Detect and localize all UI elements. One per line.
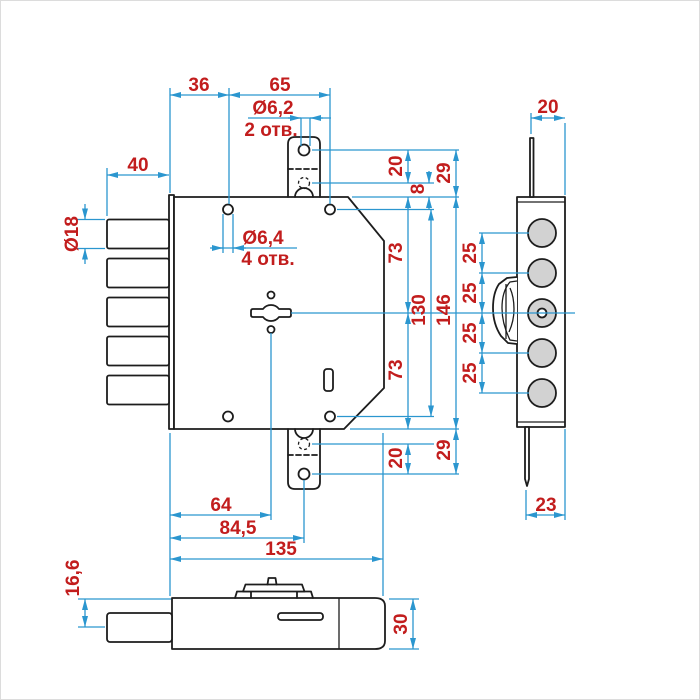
- dim-label-23: 23: [535, 495, 556, 516]
- dim-label-16-6: 16,6: [63, 560, 84, 597]
- bolt-circle-1: [528, 219, 556, 247]
- connecting-rod-top: [530, 138, 534, 197]
- dim-label-4-holes: 4 отв.: [241, 249, 294, 270]
- dim-label-dia6-4: Ø6,4: [242, 228, 284, 249]
- mounting-tab-top: [288, 137, 320, 197]
- dim-label-64: 64: [210, 495, 232, 516]
- dim-label-65: 65: [269, 75, 291, 96]
- dim-label-dia18: Ø18: [62, 216, 83, 252]
- dim-label-146: 146: [434, 294, 455, 326]
- deadbolt-3: [107, 298, 169, 327]
- dim-label-29-bottom: 29: [434, 439, 455, 460]
- bottom-view: [107, 578, 385, 649]
- tab-hole-top: [299, 145, 310, 156]
- lever-slot: [324, 369, 333, 391]
- connecting-rod-bottom: [525, 427, 529, 486]
- bolt-circle-2: [528, 259, 556, 287]
- dim-label-20-side: 20: [537, 97, 558, 118]
- bottom-deadbolt: [107, 613, 172, 642]
- dim-label-20-bottom: 20: [386, 447, 407, 468]
- dim-label-29-top: 29: [434, 162, 455, 183]
- dim-label-25-2: 25: [460, 282, 481, 304]
- dim-label-dia6-2: Ø6,2: [252, 98, 293, 119]
- dim-label-40: 40: [127, 155, 148, 176]
- drawing-svg: 36 65 Ø6,2 2 отв. 40 Ø18 Ø6,4 4 отв. 20 …: [1, 1, 700, 700]
- bottom-slot: [278, 613, 323, 620]
- deadbolt-1: [107, 220, 169, 249]
- dim-label-25-4: 25: [460, 362, 481, 384]
- latch-lever: [493, 277, 517, 344]
- dim-label-73-lower: 73: [386, 359, 407, 380]
- dim-label-130: 130: [409, 294, 430, 326]
- bolt-circle-4: [528, 339, 556, 367]
- dim-label-8: 8: [408, 184, 429, 195]
- deadbolt-5: [107, 376, 169, 405]
- dim-label-135: 135: [265, 539, 297, 560]
- dim-label-25-1: 25: [460, 242, 481, 264]
- side-view: [493, 138, 565, 486]
- lock-technical-drawing: 36 65 Ø6,2 2 отв. 40 Ø18 Ø6,4 4 отв. 20 …: [0, 0, 700, 700]
- bottom-body: [172, 598, 385, 649]
- tab-hole-bottom: [299, 469, 310, 480]
- dim-label-84-5: 84,5: [220, 518, 257, 539]
- bolt-circle-5: [528, 379, 556, 407]
- deadbolt-4: [107, 337, 169, 366]
- deadbolts: [107, 220, 169, 405]
- cylinder-profile: [235, 578, 313, 598]
- dim-label-20-top: 20: [386, 155, 407, 176]
- dim-label-73-upper: 73: [386, 242, 407, 263]
- dim-label-2-holes: 2 отв.: [244, 120, 297, 141]
- dim-label-25-3: 25: [460, 322, 481, 344]
- dim-label-36: 36: [188, 75, 209, 96]
- deadbolt-2: [107, 259, 169, 288]
- dim-label-30: 30: [391, 613, 412, 634]
